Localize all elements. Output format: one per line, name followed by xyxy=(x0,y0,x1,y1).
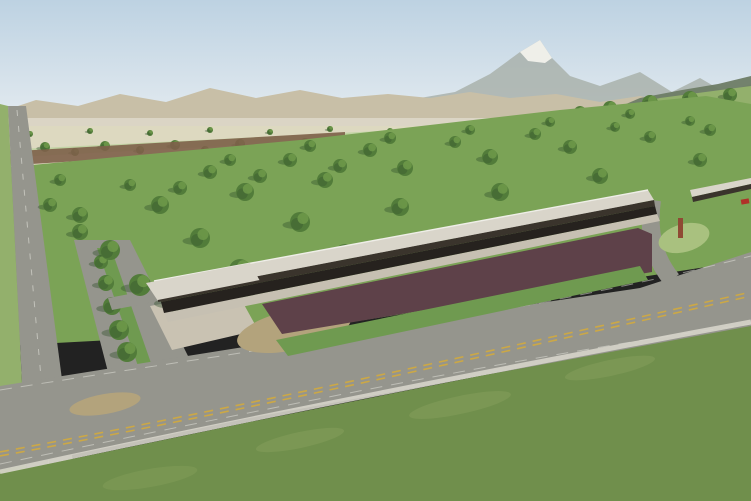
scene-canvas xyxy=(0,0,751,501)
rendered-aerial-view xyxy=(0,0,751,501)
entry-monument xyxy=(678,218,683,238)
